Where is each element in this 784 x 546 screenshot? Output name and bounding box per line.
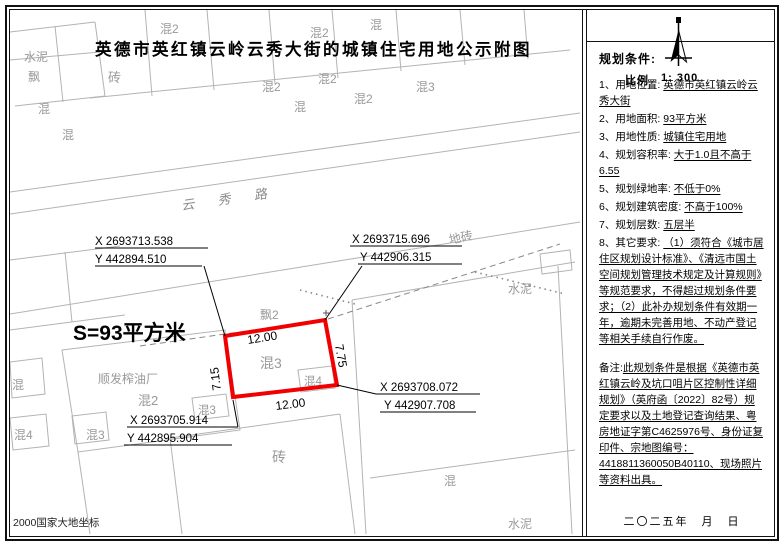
- scale-label: 比例: [625, 72, 649, 88]
- coord-3-x: X 2693708.072: [380, 382, 458, 394]
- date-line: 二〇二五年 月 日: [599, 514, 765, 530]
- notice-map-page: 水泥 飘 砖 混2 混2 混 混2 混2 混3 混2 混 混 混 地砖: [0, 0, 784, 546]
- bg-label: 混2: [354, 92, 373, 106]
- bg-label: 混2: [262, 80, 281, 94]
- scale-value: 1: 300: [661, 72, 698, 88]
- scale-bar: 比例 1: 300: [625, 72, 698, 88]
- condition-item-6: 6、规划建筑密度:不高于100%: [599, 199, 765, 215]
- note-value: 此规划条件是根据《英德市英红镇云岭及坑口咀片区控制性详细规划》（英府函〔2022…: [599, 362, 763, 486]
- parcel-top-label: 飘2: [260, 308, 279, 322]
- map-title: 英德市英红镇云岭云秀大街的城镇住宅用地公示附图: [95, 39, 532, 59]
- panel-body: 规划条件: 1、用地位置:英德市英红镇云岭云秀大街 2、用地面积:93平方米 3…: [587, 42, 774, 536]
- condition-value: 不低于0%: [674, 183, 721, 195]
- dashed-survey-lines: [140, 244, 565, 346]
- background-labels: 水泥 飘 砖 混2 混2 混 混2 混2 混3 混2 混 混 混 地砖: [12, 18, 532, 531]
- drawing-frame-inner: 水泥 飘 砖 混2 混2 混 混2 混2 混3 混2 混 混 混 地砖: [9, 9, 775, 537]
- condition-label: 5、规划绿地率:: [599, 183, 671, 195]
- map-area: 水泥 飘 砖 混2 混2 混 混2 混2 混3 混2 混 混 混 地砖: [10, 10, 583, 536]
- dim-bottom: 12.00: [275, 395, 307, 413]
- condition-label: 8、其它要求:: [599, 237, 660, 249]
- panel-top-section: 比例 1: 300: [587, 10, 774, 42]
- bg-label: 混: [38, 102, 50, 116]
- bg-label: 混: [444, 474, 456, 488]
- bg-label-ditile: 地砖: [448, 227, 475, 247]
- condition-label: 2、用地面积:: [599, 113, 660, 125]
- drawing-frame-outer: 水泥 飘 砖 混2 混2 混 混2 混2 混3 混2 混 混 混 地砖: [5, 5, 779, 541]
- condition-label: 4、规划容积率:: [599, 149, 671, 161]
- condition-value: （1）须符合《城市居住区规划设计标准》、《清远市国土空间规划管理技术规定及计算规…: [599, 237, 764, 345]
- condition-item-4: 4、规划容积率:大于1.0且不高于6.55: [599, 147, 765, 179]
- coord-1-y: Y 442894.510: [95, 254, 166, 266]
- parcel-structure-label: 混3: [260, 355, 282, 371]
- condition-value: 93平方米: [663, 113, 706, 125]
- bg-label: 水泥: [24, 50, 48, 64]
- condition-value: 不高于100%: [684, 201, 742, 213]
- bg-label: 混: [12, 378, 24, 392]
- coord-4-x: X 2693705.914: [130, 415, 209, 427]
- coord-2-x: X 2693715.696: [352, 234, 430, 246]
- coord-4-y: Y 442895.904: [127, 433, 199, 445]
- coord-1-x: X 2693713.538: [95, 236, 173, 248]
- bg-label: 水泥: [508, 282, 532, 296]
- datum-label: 2000国家大地坐标: [13, 516, 100, 529]
- bg-label: 砖: [108, 70, 121, 85]
- bg-label: 混2: [138, 393, 158, 408]
- parcel-box-label-right: 混4: [304, 375, 322, 388]
- condition-label: 7、规划层数:: [599, 219, 660, 231]
- bg-label: 水泥: [508, 517, 532, 531]
- bg-label: 混3: [416, 80, 435, 94]
- bg-label: 混: [370, 18, 382, 32]
- bg-label: 混2: [310, 26, 329, 40]
- map-svg: 水泥 飘 砖 混2 混2 混 混2 混2 混3 混2 混 混 混 地砖: [10, 10, 582, 536]
- condition-item-2: 2、用地面积:93平方米: [599, 111, 765, 127]
- factory-label: 顺发榨油厂: [98, 371, 158, 386]
- coord-3-y: Y 442907.708: [384, 400, 455, 412]
- north-arrow-icon: [649, 16, 709, 72]
- condition-value: 城镇住宅用地: [663, 131, 726, 143]
- note-paragraph: 备注:此规划条件是根据《英德市英红镇云岭及坑口咀片区控制性详细规划》（英府函〔2…: [599, 360, 765, 488]
- parcel-lines: [10, 10, 580, 534]
- bg-label: 混3: [86, 428, 105, 442]
- condition-item-7: 7、规划层数:五层半: [599, 217, 765, 233]
- bg-label: 混2: [318, 72, 337, 86]
- condition-item-5: 5、规划绿地率:不低于0%: [599, 181, 765, 197]
- condition-label: 6、规划建筑密度:: [599, 201, 681, 213]
- dim-left: 7.15: [207, 366, 224, 391]
- bg-label: 混4: [14, 428, 33, 442]
- parcel-area-label: S=93平方米: [73, 321, 187, 345]
- bg-label: 混2: [160, 22, 179, 36]
- note-label: 备注:: [599, 362, 623, 374]
- coord-2-y: Y 442906.315: [360, 252, 431, 264]
- road-name-label: 云 秀 路: [180, 185, 277, 213]
- bg-label: 飘: [28, 70, 40, 84]
- bg-label: 砖: [272, 449, 286, 465]
- condition-value: 五层半: [663, 219, 695, 231]
- bg-label: 混: [294, 100, 306, 114]
- condition-item-3: 3、用地性质:城镇住宅用地: [599, 129, 765, 145]
- condition-item-8: 8、其它要求:（1）须符合《城市居住区规划设计标准》、《清远市国土空间规划管理技…: [599, 235, 765, 347]
- condition-label: 3、用地性质:: [599, 131, 660, 143]
- conditions-panel: 比例 1: 300 规划条件: 1、用地位置:英德市英红镇云岭云秀大街 2、用地…: [586, 10, 774, 536]
- bg-label: 混: [62, 128, 74, 142]
